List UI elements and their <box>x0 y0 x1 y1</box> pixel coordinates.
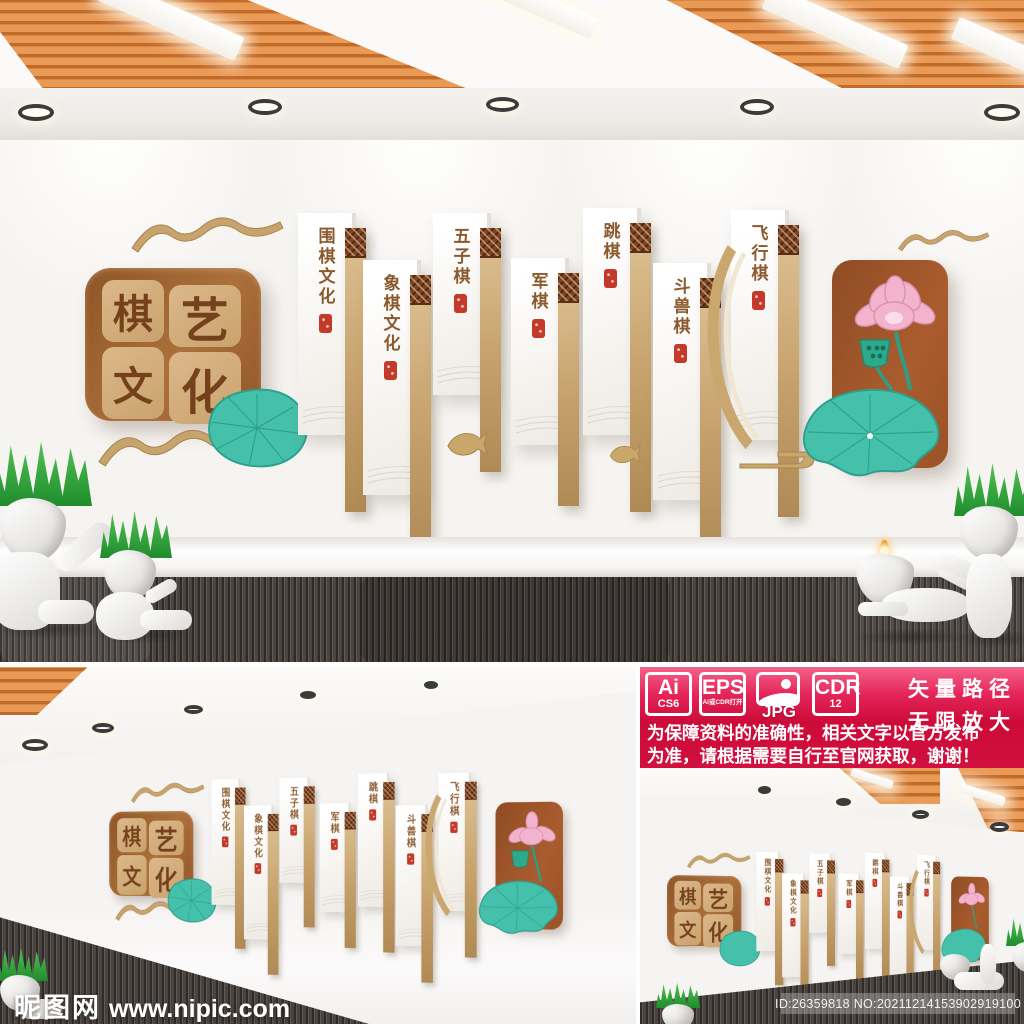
wood-slat-cove <box>0 0 530 88</box>
stock-preview-page: 棋 艺 文 化 <box>0 0 1024 1024</box>
ceiling <box>640 768 1024 838</box>
ceiling-bulkhead <box>0 88 1024 140</box>
badge-cdr-sublabel: 12 <box>815 699 856 710</box>
wall-panel: 象棋文化 <box>363 260 421 495</box>
accuracy-notice: 为保障资料的准确性，相关文字以官方发布 为准，请根据需要自行至官网获取，谢谢！ <box>647 722 980 768</box>
wall-panel: 围棋文化 <box>298 213 356 435</box>
planter-pot <box>960 506 1018 560</box>
lattice-carving-icon <box>558 273 579 303</box>
figurine-leg <box>38 600 94 624</box>
lattice-carving-icon <box>410 275 431 305</box>
wall-panel: 五子棋 <box>279 778 309 883</box>
render-left-perspective-view: 棋 艺 文 化 <box>0 667 636 1024</box>
watermark: 昵图网 www.nipic.com <box>14 986 290 1024</box>
downlight-icon <box>486 97 519 112</box>
badge-ai-label: Ai <box>648 677 689 698</box>
wall-panel: 象棋文化 <box>244 805 273 940</box>
fish-ornament-icon <box>444 428 488 462</box>
badge-eps-label: EPS <box>702 677 743 698</box>
lattice-carving-icon <box>304 786 315 804</box>
seal-stamp-icon <box>674 344 687 363</box>
badge-ai-sublabel: CS6 <box>648 699 689 710</box>
seal-stamp-icon <box>407 853 414 864</box>
lattice-carving-icon <box>383 782 394 800</box>
downlight-icon <box>836 798 851 806</box>
sun-dot-icon <box>781 679 791 689</box>
panel-strip <box>558 273 579 506</box>
seal-stamp-icon <box>765 897 770 906</box>
wall-panel: 五子棋 <box>809 853 831 933</box>
figurine-standing-planter <box>948 462 1024 652</box>
downlight-icon <box>300 691 316 699</box>
seal-stamp-icon <box>290 825 297 836</box>
panel-label: 五子棋 <box>815 860 824 886</box>
badge-eps-sublabel: AI或CDR打开 <box>702 700 743 707</box>
seal-stamp-icon <box>222 836 228 847</box>
panel-label: 围棋文化 <box>219 787 231 832</box>
notice-line2: 为准，请根据需要自行至官网获取，谢谢！ <box>647 745 980 768</box>
badge-cdr: CDR 12 <box>812 672 859 716</box>
figurine-body <box>980 944 996 984</box>
panel-label: 围棋文化 <box>762 858 772 894</box>
panel-label: 军棋 <box>526 272 551 312</box>
wall-panel: 围棋文化 <box>212 779 241 905</box>
wall-panel: 军棋 <box>839 874 860 955</box>
lotus-leaf-large-icon <box>798 386 944 478</box>
seal-stamp-icon <box>817 889 822 897</box>
image-icon <box>756 672 800 706</box>
panel-label: 五子棋 <box>287 786 300 821</box>
panel-strip <box>383 782 394 953</box>
downlight-icon <box>22 739 48 751</box>
seal-stamp-icon <box>454 294 467 313</box>
planter-pot <box>662 1004 694 1024</box>
section-divider <box>636 662 640 1024</box>
lattice-carving-icon <box>827 860 835 873</box>
culture-wall-art: 棋 艺 文 化 <box>60 190 990 500</box>
notice-line1: 为保障资料的准确性，相关文字以官方发布 <box>647 722 980 745</box>
panel-strip <box>410 275 431 556</box>
lattice-carving-icon <box>345 812 356 830</box>
lattice-carving-icon <box>345 228 366 258</box>
seal-stamp-icon <box>790 918 795 926</box>
downlight-icon <box>92 723 114 733</box>
panel-label: 斗兽棋 <box>895 883 904 908</box>
panel-strip <box>882 860 889 982</box>
figurine-leg <box>140 610 192 630</box>
wall-panel: 跳棋 <box>358 773 389 907</box>
plant-pot <box>652 982 712 1024</box>
wall-panel: 斗兽棋 <box>396 805 428 946</box>
panel-label: 斗兽棋 <box>404 814 418 850</box>
lattice-carving-icon <box>480 228 501 258</box>
lattice-carving-icon <box>882 860 889 873</box>
panel-label: 象棋文化 <box>251 813 264 859</box>
panel-strip <box>856 880 864 980</box>
watermark-url: www.nipic.com <box>109 995 290 1024</box>
lotus-flower-icon <box>953 881 989 931</box>
render-main-view: 棋 艺 文 化 <box>0 0 1024 662</box>
downlight-icon <box>18 104 54 121</box>
seal-stamp-icon <box>331 839 338 850</box>
seal-stamp-icon <box>846 900 851 908</box>
figurine-body <box>966 554 1012 638</box>
badge-jpg-label: JPG <box>753 703 805 720</box>
seal-stamp-icon <box>604 269 617 288</box>
seal-stamp-icon <box>532 319 545 338</box>
downlight-icon <box>740 99 774 115</box>
asset-id-text: ID:26359818 NO:20211214153902919100 <box>775 997 1021 1011</box>
info-quadrant: Ai CS6 EPS AI或CDR打开 JPG CDR 12 <box>640 667 1024 1024</box>
panel-label: 斗兽棋 <box>668 277 693 337</box>
panel-strip <box>827 860 835 966</box>
cloud-ornament-icon <box>896 216 992 258</box>
panel-label: 跳棋 <box>870 859 879 876</box>
wall-panel: 五子棋 <box>433 213 491 395</box>
panel-strip <box>630 223 651 512</box>
wood-slat-cove <box>0 667 170 715</box>
lattice-carving-icon <box>268 814 279 831</box>
badge-cdr-label: CDR <box>815 677 856 698</box>
figurine-sitting-planter <box>88 510 198 650</box>
seal-stamp-icon <box>254 863 261 874</box>
panel-strip <box>304 786 315 927</box>
wall-panel: 斗兽棋 <box>890 877 910 977</box>
panel-strip <box>345 812 356 948</box>
figurine-body <box>954 972 1004 990</box>
wall-panel: 军棋 <box>511 258 569 445</box>
ceiling-light-strip <box>481 0 600 39</box>
lattice-carving-icon <box>800 880 808 893</box>
panel-label: 跳棋 <box>366 782 379 806</box>
downlight-icon <box>984 104 1020 121</box>
wall-panel: 斗兽棋 <box>653 263 711 500</box>
panel-label: 跳棋 <box>598 222 623 262</box>
downlight-icon <box>184 705 203 714</box>
lattice-carving-icon <box>235 788 246 805</box>
downlight-icon <box>424 681 438 689</box>
asset-id-bar: ID:26359818 NO:20211214153902919100 <box>781 993 1015 1014</box>
slogan-line1: 矢量路径 <box>908 674 1016 707</box>
panel-label: 象棋文化 <box>788 880 798 915</box>
panel-strip <box>268 814 279 975</box>
wall-panel: 军棋 <box>320 803 351 912</box>
panel-label: 五子棋 <box>448 227 473 287</box>
seal-stamp-icon <box>369 809 376 820</box>
panel-label: 围棋文化 <box>313 227 338 307</box>
nipic-logo: 昵图网 <box>14 986 101 1024</box>
downlight-icon <box>912 810 929 819</box>
lattice-carving-icon <box>630 223 651 253</box>
wall-panel: 跳棋 <box>583 208 641 435</box>
badge-ai: Ai CS6 <box>645 672 692 716</box>
grass-plant <box>0 440 92 506</box>
format-banner: Ai CS6 EPS AI或CDR打开 JPG CDR 12 <box>640 667 1024 768</box>
lotus-flower-icon <box>838 272 948 394</box>
panel-label: 军棋 <box>327 811 340 834</box>
lotus-leaf-large-icon <box>476 879 560 936</box>
fish-ornament-icon <box>606 442 642 468</box>
lattice-carving-icon <box>856 880 864 893</box>
wall-panel: 跳棋 <box>865 853 886 950</box>
panel-label: 象棋文化 <box>378 274 403 354</box>
section-divider <box>0 662 1024 667</box>
culture-wall-art: 棋 艺 文 化 <box>98 758 588 950</box>
panel-label: 军棋 <box>844 880 853 897</box>
lotus-flower-icon <box>499 809 563 884</box>
wall-panel: 围棋文化 <box>756 852 779 952</box>
lattice-carving-icon <box>775 859 783 872</box>
figurine-arm <box>858 602 908 616</box>
downlight-icon <box>248 99 282 115</box>
badge-eps: EPS AI或CDR打开 <box>699 672 746 716</box>
ceiling <box>0 0 1024 88</box>
seal-stamp-icon <box>384 361 397 380</box>
seal-stamp-icon <box>897 911 902 919</box>
format-badges: Ai CS6 EPS AI或CDR打开 JPG CDR 12 <box>645 672 859 720</box>
render-right-perspective-view: 棋 艺 文 化 围棋文化 <box>640 768 1024 1024</box>
carpet-tile <box>360 577 670 662</box>
seal-stamp-icon <box>319 314 332 333</box>
badge-jpg: JPG <box>753 672 805 720</box>
seal-stamp-icon <box>872 879 877 887</box>
downlight-icon <box>758 786 771 794</box>
wall-panel: 象棋文化 <box>782 873 805 977</box>
downlight-icon <box>990 822 1009 832</box>
